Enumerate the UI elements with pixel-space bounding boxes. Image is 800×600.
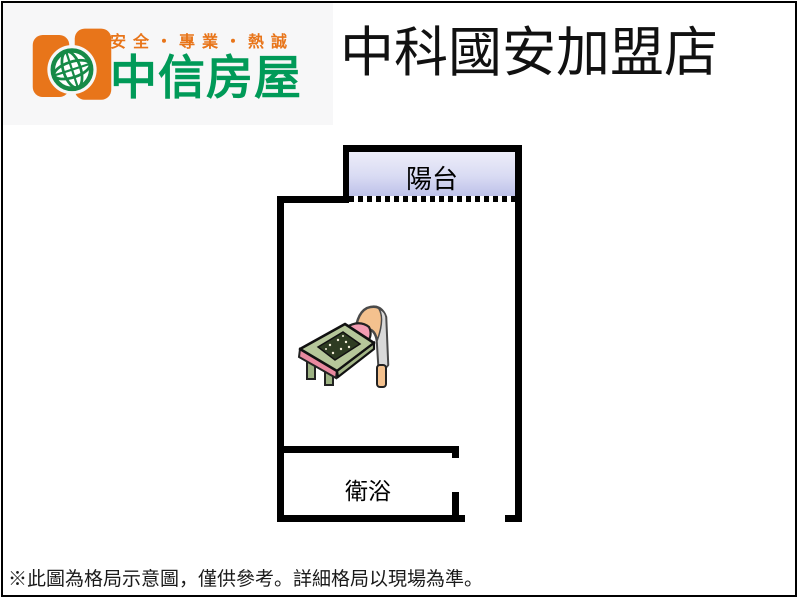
bed-icon — [297, 303, 393, 391]
company-logo-icon — [30, 24, 114, 108]
globe-icon — [30, 24, 114, 108]
bathroom-door-jamb-bottom — [452, 492, 459, 522]
wall-right — [515, 145, 522, 522]
wall-top-left — [277, 196, 349, 203]
wall-bottom — [277, 515, 465, 522]
disclaimer-text: ※此圖為格局示意圖，僅供參考。詳細格局以現場為準。 — [8, 564, 788, 591]
bathroom-door-jamb-top — [452, 446, 459, 458]
balcony-sliding-door-dotted-line — [349, 196, 515, 202]
bathroom-wall-top — [277, 446, 459, 453]
balcony-label: 陽台 — [349, 159, 515, 196]
brand-block: 安全・專業・熱誠 中信房屋 — [110, 28, 340, 101]
wall-left — [277, 196, 284, 522]
page-title-store-name: 中科國安加盟店 — [340, 22, 780, 84]
listing-floorplan-image: 安全・專業・熱誠 中信房屋 中科國安加盟店 陽台 衛浴 — [0, 0, 800, 600]
bathroom-label: 衛浴 — [284, 472, 452, 506]
brand-name: 中信房屋 — [110, 54, 340, 101]
wall-bottom-right-foot — [505, 515, 522, 522]
brand-slogan: 安全・專業・熱誠 — [110, 28, 340, 52]
